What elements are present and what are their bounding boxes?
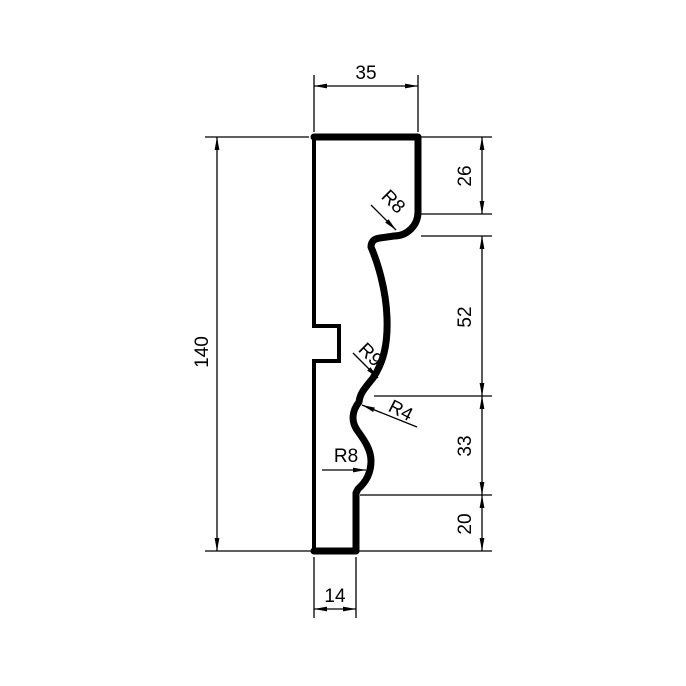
moulding-profile-drawing: 35 140 26 52 33 20 14 (0, 0, 686, 686)
dimension-value-seg-top: 26 (455, 165, 476, 186)
profile-back-outline (314, 134, 339, 554)
radius-value-top: R8 (377, 186, 409, 218)
dimension-value-bottom-width: 14 (324, 586, 346, 607)
dimension-top-width: 35 (314, 63, 418, 132)
dimension-segment-33: 33 (360, 396, 492, 495)
dimension-segment-20: 20 (455, 495, 482, 551)
dimension-bottom-width: 14 (314, 557, 356, 618)
radius-callout-r8-bottom: R8 (322, 446, 366, 470)
radius-callout-r4: R4 (362, 396, 417, 427)
radius-value-ogee-lower: R4 (385, 396, 417, 426)
dimension-value-seg-upper-mid: 52 (455, 306, 476, 327)
dimension-value-seg-lower-mid: 33 (455, 435, 476, 456)
dimension-overall-height: 140 (192, 137, 492, 551)
dimension-value-top-width: 35 (355, 63, 376, 84)
dimension-value-overall-height: 140 (192, 336, 213, 368)
dimension-segment-52: 52 (374, 236, 492, 396)
drawing-canvas: 35 140 26 52 33 20 14 (0, 0, 686, 686)
radius-callout-r8-top: R8 (371, 186, 409, 230)
dimension-segment-26: 26 (420, 137, 492, 214)
radius-value-bottom: R8 (334, 446, 358, 467)
dimension-value-seg-bottom: 20 (455, 513, 476, 534)
